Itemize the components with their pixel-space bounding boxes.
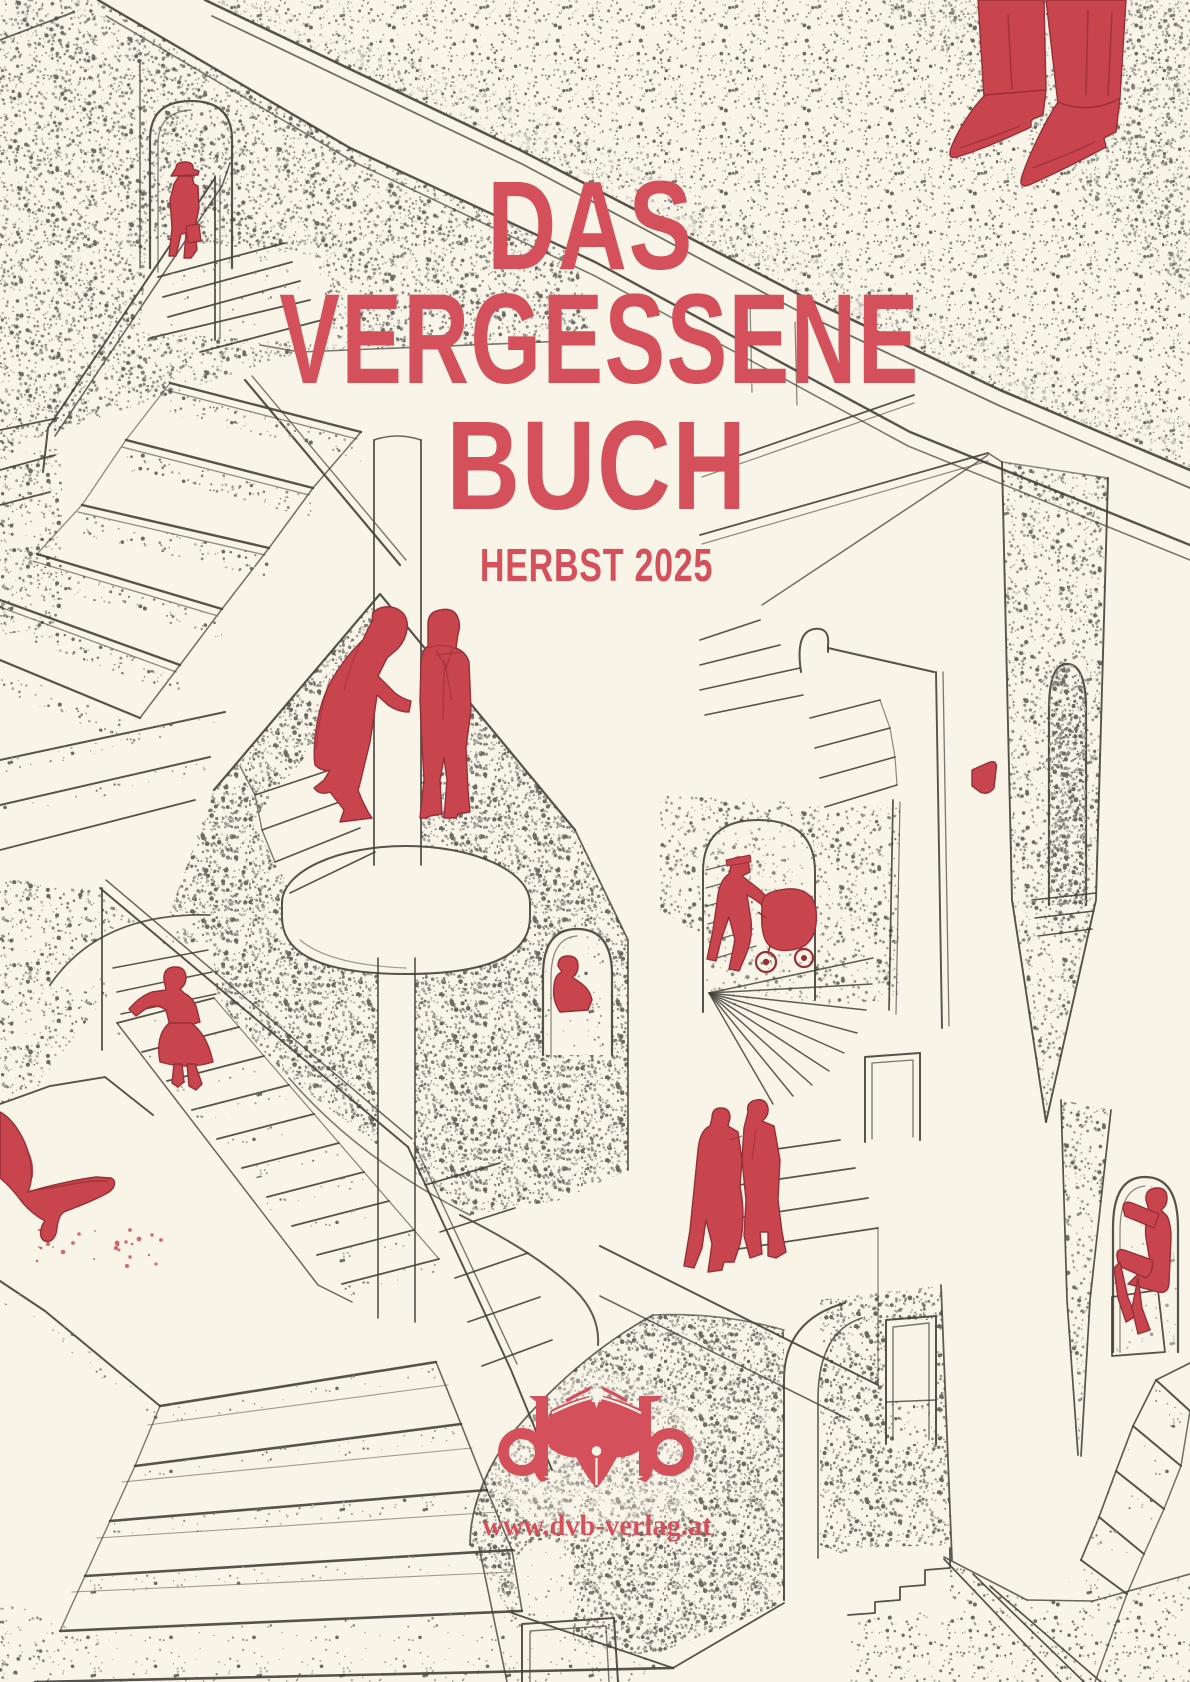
svg-text:www.dvb-verlag.at: www.dvb-verlag.at: [482, 1509, 712, 1542]
svg-text:HERBST 2025: HERBST 2025: [480, 539, 713, 591]
svg-text:VERGESSENE: VERGESSENE: [279, 268, 919, 411]
svg-text:BUCH: BUCH: [446, 396, 747, 537]
